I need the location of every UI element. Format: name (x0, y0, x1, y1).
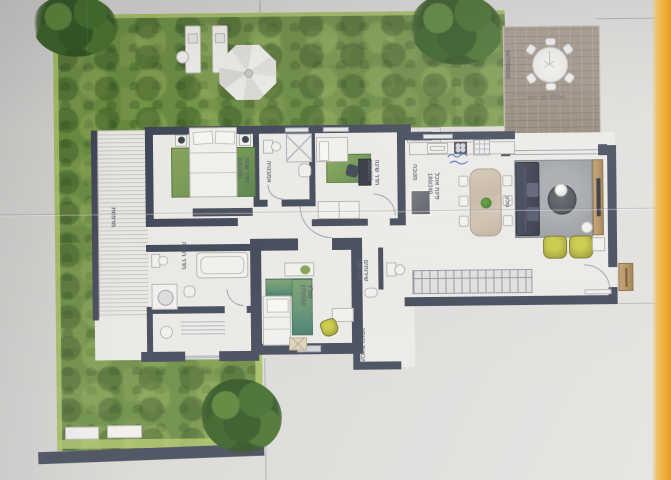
side-table (581, 221, 593, 233)
window (423, 134, 453, 139)
wc-label: שירותים130/165 (355, 260, 368, 282)
bed-pillow (319, 141, 329, 161)
safe-room-rug (265, 278, 292, 296)
stepping-stone (65, 426, 99, 439)
wall-west-master (145, 127, 154, 227)
west-porch-label: מרפסת (109, 207, 116, 227)
outdoor-chair (545, 83, 556, 91)
toilet-bowl (394, 264, 405, 275)
safe-room-bed (263, 295, 292, 345)
wall-shower-room-north (146, 244, 254, 252)
sofa-cushion (526, 183, 538, 197)
wall-south-main (405, 295, 618, 306)
sofa (515, 162, 540, 236)
dining-chair (459, 216, 469, 227)
armchair (543, 236, 567, 259)
wall-bath-south (254, 200, 268, 207)
tv-icon (596, 178, 600, 216)
centerpiece-plant (481, 197, 492, 208)
tree (32, 0, 118, 57)
wall-master-south (146, 218, 238, 227)
dining-label: פינת אוכל180/240 (426, 173, 439, 200)
dining-chair (503, 215, 513, 226)
wall-living-east (607, 145, 617, 267)
wall-wc-partition (378, 248, 383, 290)
bed-pillow (192, 131, 213, 146)
wall-shower-room-south (247, 306, 255, 313)
living-label: סלון (503, 196, 510, 207)
bed-pillow (267, 298, 289, 312)
plant-icon (300, 265, 310, 274)
dining-chair (459, 196, 469, 207)
wall-north-kitchen (403, 131, 515, 140)
console-shelf (592, 237, 605, 251)
deck-label: מרפסת עץ (504, 50, 511, 79)
sofa-cushion (527, 207, 539, 221)
entry-doormat (618, 263, 633, 291)
west-porch-decking (97, 130, 149, 319)
floor-plan-photo: הצללה לפי היתר מרפסת עץ מרפסת (0, 0, 671, 480)
tv-console (592, 159, 604, 235)
kitchen-label: מטבח (411, 164, 418, 180)
bed-pillow (215, 131, 236, 145)
window (323, 127, 349, 132)
umbrella-pole-icon (244, 69, 253, 78)
extension-line (596, 18, 658, 20)
bathroom-sink (183, 285, 195, 297)
kitchen-sink (427, 143, 448, 154)
dining-chair (458, 176, 468, 187)
bedroom2-bed (316, 137, 348, 162)
garden-sliding-door (185, 355, 219, 358)
window (285, 127, 309, 132)
stairs (412, 269, 532, 294)
lamp-icon (242, 136, 249, 143)
wall-service-south (141, 352, 185, 362)
stepping-stone (107, 425, 142, 438)
shower-room-label: חדר רחצה (180, 242, 187, 270)
laundry-basin (160, 326, 173, 339)
wall-br2-east (397, 132, 406, 225)
master-bedroom-label: חדר שינה305/280 (236, 157, 249, 183)
page-edge-strip (652, 0, 671, 480)
safe-room-label: ממ"ד270/260 (299, 284, 312, 305)
garden-side-table (176, 51, 189, 64)
tree (201, 379, 282, 454)
outdoor-chair (545, 38, 556, 46)
wall-post (598, 144, 607, 155)
bathtub (196, 252, 248, 279)
safe-room-dresser (284, 262, 314, 276)
sun-lounger (185, 25, 202, 73)
toilet-bowl (271, 142, 281, 152)
plan-sheet: הצללה לפי היתר מרפסת עץ מרפסת (0, 0, 671, 480)
bathroom-label: אמבטיה (265, 161, 272, 183)
master-bed (189, 127, 238, 197)
wc-sink (365, 288, 378, 298)
small-rug (289, 337, 307, 350)
pantry-cabinet (473, 139, 490, 155)
toilet-bowl (158, 256, 168, 266)
washing-machine (151, 284, 177, 310)
entry-door-leaf (585, 289, 612, 294)
bed-blanket (190, 172, 236, 173)
living-window-wall (505, 149, 607, 155)
lamp-icon (178, 137, 185, 144)
wall-service-south (219, 351, 259, 361)
shower (286, 133, 312, 162)
blue-pen-annotation (446, 152, 472, 168)
entry-hall-label: מבואת כניסה (358, 328, 365, 364)
deck-permit-note: הצללה לפי היתר (526, 95, 565, 101)
bedroom2-label: חדר שינה280/270 (366, 160, 379, 186)
bed-blanket (190, 152, 236, 153)
master-dresser (192, 207, 254, 218)
table-lamp-ball (554, 184, 567, 197)
armchair (569, 235, 593, 258)
bathroom-sink (298, 163, 311, 177)
wall-safe-room-west (250, 239, 262, 355)
dining-chair (502, 175, 512, 186)
